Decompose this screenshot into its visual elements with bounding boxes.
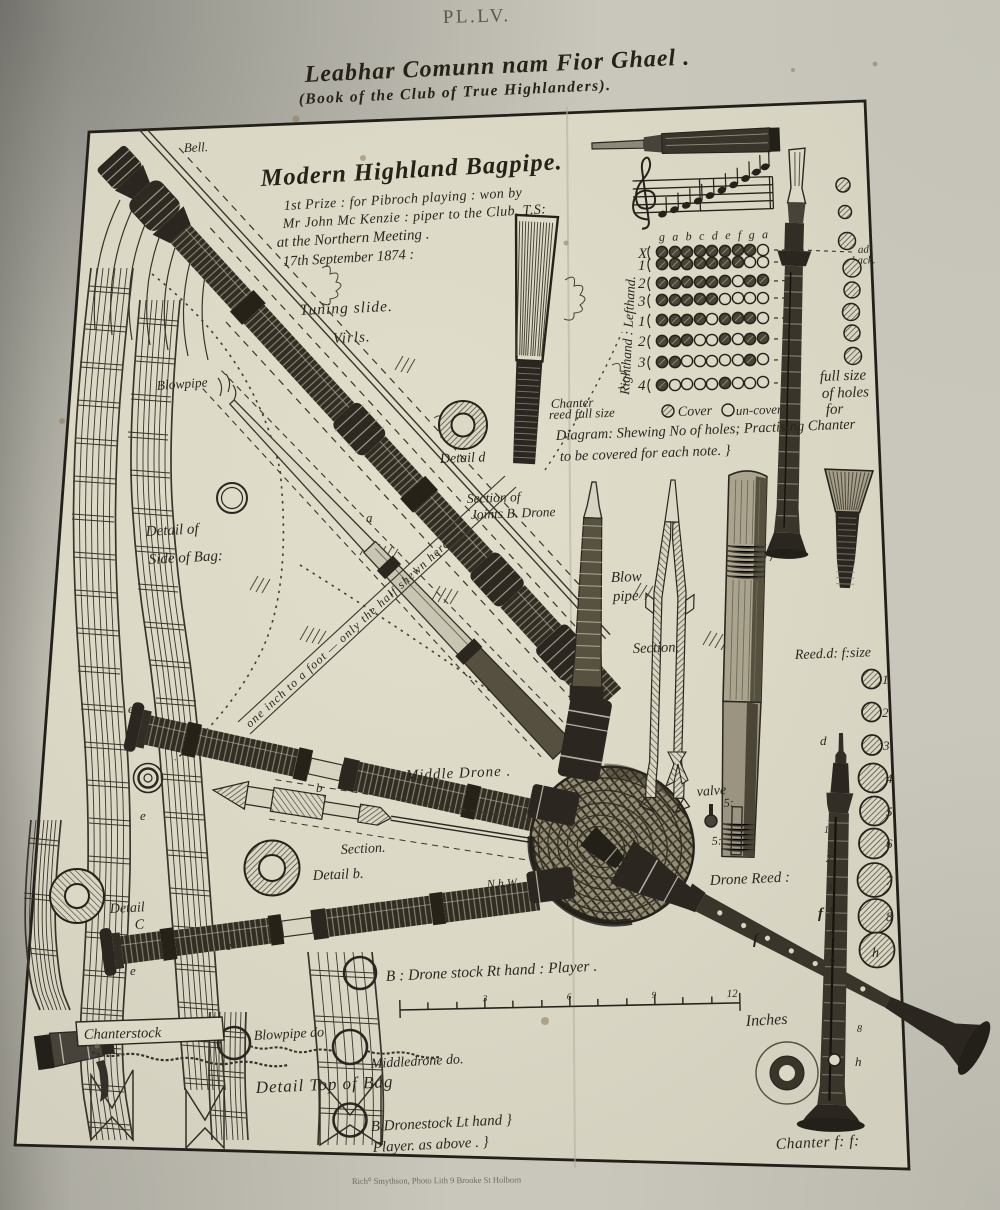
svg-text:h: h: [855, 1054, 862, 1069]
svg-text:3: 3: [482, 993, 488, 1003]
svg-text:C: C: [134, 917, 145, 933]
svg-text:Detail d: Detail d: [439, 450, 487, 467]
svg-text:e: e: [226, 938, 232, 953]
svg-text:Cover: Cover: [678, 404, 713, 420]
svg-text:4: 4: [886, 771, 893, 786]
svg-text:5: 5: [886, 804, 893, 819]
svg-text:2: 2: [638, 334, 646, 350]
svg-text:Blow: Blow: [611, 569, 642, 586]
svg-text:1: 1: [882, 672, 889, 687]
svg-text:7: 7: [886, 873, 893, 888]
svg-text:e: e: [130, 963, 136, 978]
svg-text:5:: 5:: [723, 795, 734, 810]
svg-text:pipe: pipe: [612, 588, 640, 605]
svg-text:4: 4: [638, 378, 646, 394]
svg-text:2: 2: [638, 276, 646, 292]
svg-text:8: 8: [886, 909, 893, 924]
svg-text:b: b: [316, 780, 323, 795]
svg-text:1: 1: [638, 258, 646, 274]
svg-text:Section.: Section.: [633, 639, 680, 657]
svg-text:e: e: [140, 808, 146, 823]
svg-text:PL.LV.: PL.LV.: [443, 5, 511, 28]
svg-text:Detail b.: Detail b.: [311, 866, 363, 884]
svg-text:Bell.: Bell.: [184, 139, 209, 155]
svg-text:Section of: Section of: [467, 489, 523, 506]
svg-text:a: a: [366, 510, 373, 525]
svg-text:6: 6: [567, 991, 572, 1001]
svg-text:1: 1: [824, 825, 829, 836]
svg-text:d: d: [820, 733, 827, 748]
svg-text:g a b c d e f g a: g a b c d e f g a: [659, 227, 771, 244]
svg-text:reed full size: reed full size: [549, 405, 616, 422]
svg-text:Detail of: Detail of: [144, 521, 201, 540]
svg-text:Chanterstock: Chanterstock: [84, 1025, 162, 1043]
svg-text:5.: 5.: [675, 800, 685, 815]
svg-text:1: 1: [638, 314, 646, 330]
svg-text:2: 2: [826, 854, 831, 865]
svg-text:of holes: of holes: [822, 384, 870, 402]
svg-text:6: 6: [830, 955, 835, 966]
svg-text:for: for: [826, 401, 844, 418]
svg-text:c: c: [621, 839, 627, 854]
svg-text:3: 3: [882, 738, 890, 753]
svg-text:Joints B. Drone: Joints B. Drone: [471, 504, 556, 522]
svg-text:un-cover.: un-cover.: [736, 401, 785, 418]
svg-text:Virls.: Virls.: [332, 329, 370, 347]
svg-text:Inches: Inches: [744, 1011, 788, 1030]
svg-text:8: 8: [857, 1024, 862, 1035]
svg-text:3: 3: [637, 355, 646, 371]
svg-text:e: e: [128, 701, 134, 716]
svg-text:6: 6: [886, 836, 893, 851]
svg-text:Section.: Section.: [340, 841, 385, 858]
svg-text:valve: valve: [696, 783, 727, 800]
svg-text:full size: full size: [820, 367, 867, 385]
svg-text:Detail: Detail: [108, 900, 145, 917]
svg-text:5:: 5:: [711, 833, 722, 848]
svg-text:Rich⁰ Smythson, Photo Lith 9 B: Rich⁰ Smythson, Photo Lith 9 Brooke St H…: [352, 1175, 522, 1186]
svg-text:2: 2: [882, 705, 889, 720]
svg-text:N.h.W: N.h.W: [485, 875, 518, 891]
svg-text:12: 12: [727, 988, 739, 1000]
svg-text:3: 3: [826, 883, 832, 894]
svg-text:9: 9: [652, 990, 657, 1000]
svg-text:5: 5: [829, 930, 834, 941]
svg-text:4: 4: [828, 906, 833, 917]
svg-text:h: h: [872, 946, 879, 961]
svg-text:3: 3: [637, 294, 646, 310]
svg-text:Reed.d: f:size: Reed.d: f:size: [794, 645, 872, 663]
